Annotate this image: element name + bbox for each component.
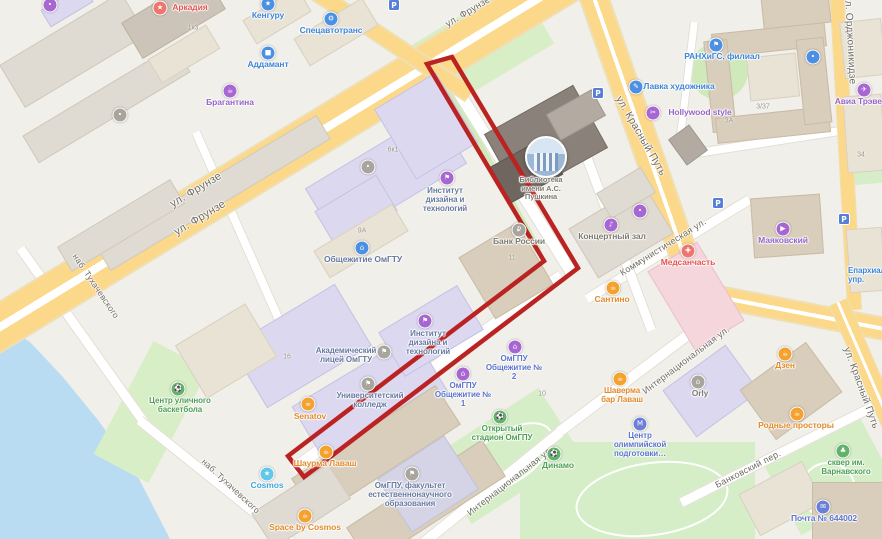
scissors-glyph: ✂ (650, 110, 656, 117)
star-glyph: ★ (265, 1, 271, 8)
poi-icon[interactable]: • (806, 50, 821, 65)
dot-glyph: • (638, 208, 642, 215)
park-icon[interactable]: ♣ (836, 444, 851, 459)
poi-label-eparkhia[interactable]: Епархиальное упр. (848, 266, 882, 284)
poi-label-library[interactable]: Библиотека имени А.С. Пушкина (515, 176, 567, 202)
poi-label-medsanchast[interactable]: Медсанчасть (661, 258, 715, 268)
flag-glyph: ⚑ (713, 42, 719, 49)
poi-label-addamant[interactable]: Аддамант (247, 60, 288, 70)
p-glyph: P (391, 1, 397, 10)
star-glyph: ★ (157, 5, 163, 12)
poi-label-omgpu-dorm1[interactable]: ОмГПУ Общежитие № 1 (432, 381, 494, 409)
education-icon[interactable]: ⚑ (377, 345, 392, 360)
poi-label-senatov[interactable]: Senatov (294, 412, 326, 422)
ball-glyph: ⚽ (174, 386, 183, 393)
poi-label-college[interactable]: Университетский колледж (336, 391, 404, 409)
parking-icon[interactable]: P (838, 213, 850, 225)
home-glyph: ⌂ (461, 371, 465, 378)
coffee-glyph: ☕ (323, 449, 329, 456)
poi-label-bank[interactable]: Банк России (493, 237, 545, 247)
poi-label-arkadia[interactable]: Аркадия (172, 3, 207, 13)
poi-label-avia-travel[interactable]: Авиа Трэвел (835, 97, 882, 107)
poi-label-mayakovsky[interactable]: Маяковский (758, 236, 808, 246)
poi-label-dinamo[interactable]: Динамо (542, 461, 574, 471)
poi-icon[interactable]: • (113, 108, 128, 123)
poi-icon[interactable]: • (633, 204, 648, 219)
education-icon[interactable]: ⚑ (405, 467, 420, 482)
poi-label-dzen[interactable]: Дзен (775, 361, 795, 371)
dot-glyph: • (48, 2, 52, 9)
building-number: 3А (725, 118, 734, 125)
star-glyph: ★ (264, 471, 270, 478)
music-glyph: ♪ (609, 222, 613, 229)
education-icon[interactable]: ⚑ (361, 377, 376, 392)
poi-label-lavka[interactable]: Лавка художника (643, 82, 714, 92)
poi-label-concert-hall[interactable]: Концертный зал (578, 232, 646, 242)
building-number: 9А (358, 228, 367, 235)
building-number: 16 (283, 354, 291, 361)
parking-icon[interactable]: P (592, 87, 604, 99)
building-number: 6к1 (388, 147, 399, 154)
poi-label-hollywood[interactable]: Hollywood style (668, 108, 731, 118)
parking-icon[interactable]: P (712, 197, 724, 209)
poi-label-shaurma[interactable]: Шаурма Лаваш (294, 459, 357, 469)
coffee-glyph: ☕ (782, 351, 788, 358)
dot-glyph: • (811, 54, 815, 61)
education-icon[interactable]: ⚑ (418, 314, 433, 329)
building-number: 1к3 (188, 25, 199, 32)
p-glyph: P (841, 215, 847, 224)
building-number: 34 (857, 152, 865, 159)
poi-label-shaverma[interactable]: Шаверма бар Лаваш (599, 386, 645, 404)
flag-glyph: ⚑ (365, 381, 371, 388)
beauty-salon-icon[interactable]: ✂ (646, 106, 661, 121)
dot-glyph: • (118, 112, 122, 119)
m-glyph: М (637, 421, 643, 428)
poi-label-omgpu-stadium[interactable]: Открытый стадион ОмГПУ (471, 424, 533, 442)
poi-label-kenguru[interactable]: Кенгуру (252, 11, 284, 21)
education-icon[interactable]: ⚑ (440, 171, 455, 186)
art-shop-icon[interactable]: ✎ (629, 80, 644, 95)
home-glyph: ⌂ (360, 245, 364, 252)
poi-label-basketball[interactable]: Центр уличного баскетбола (147, 396, 213, 414)
poi-label-dorm-omgtu[interactable]: Общежитие ОмГТУ (324, 255, 402, 265)
cafe-icon[interactable]: ☕ (301, 397, 316, 412)
block-glyph: ■ (265, 50, 272, 57)
poi-label-ranhigs[interactable]: РАНХиГС, филиал (684, 52, 760, 62)
poi-label-design-institute[interactable]: Институт дизайна и технологий (420, 186, 470, 214)
home-glyph: ⌂ (696, 379, 700, 386)
building-number: 11 (508, 255, 515, 262)
poi-label-bragantina[interactable]: Брагантина (206, 98, 254, 108)
flag-glyph: ⚑ (381, 349, 387, 356)
flag-glyph: ⚑ (409, 471, 415, 478)
play-glyph: ▶ (780, 226, 785, 233)
coffee-glyph: ☕ (610, 285, 616, 292)
coffee-glyph: ☕ (305, 401, 311, 408)
home-glyph: ⌂ (513, 344, 517, 351)
poi-label-omgpu-faculty[interactable]: ОмГПУ, факультет естественнонаучного обр… (366, 481, 454, 509)
cross-glyph: ✚ (685, 248, 691, 255)
poi-label-space-cosmos[interactable]: Space by Cosmos (269, 523, 341, 533)
shop-icon[interactable]: ★ (153, 1, 168, 16)
poi-label-orly[interactable]: Orly (692, 389, 709, 399)
building-number: 3/37 (756, 104, 770, 111)
ball-glyph: ⚽ (550, 451, 559, 458)
ruble-glyph: ₽ (517, 227, 521, 234)
poi-icon[interactable]: • (361, 160, 376, 175)
poi-label-pochta[interactable]: Почта № 644002 (791, 514, 857, 524)
coffee-glyph: ☕ (617, 376, 623, 383)
cafe-icon[interactable]: ☕ (613, 372, 628, 387)
dormitory-icon[interactable]: ⌂ (508, 340, 523, 355)
gear-glyph: ⚙ (328, 16, 334, 23)
coffee-glyph: ☕ (794, 411, 800, 418)
club-glyph: ♣ (840, 448, 846, 455)
sports-icon[interactable]: ⚽ (493, 410, 508, 425)
poi-label-skver[interactable]: сквер им. Варнавского (820, 458, 872, 476)
flag-glyph: ⚑ (444, 175, 450, 182)
poi-label-design-institute-2[interactable]: Институт дизайна и технологий (403, 329, 453, 357)
poi-label-cosmos[interactable]: Cosmos (251, 481, 284, 491)
coffee-glyph: ☕ (302, 513, 308, 520)
parking-icon[interactable]: P (388, 0, 400, 11)
poi-label-olympic-center[interactable]: Центр олимпийской подготовки… (612, 431, 668, 459)
flag-glyph: ⚑ (422, 318, 428, 325)
poi-label-omgpu-dorm2[interactable]: ОмГПУ Общежитие № 2 (483, 354, 545, 382)
sports-center-icon[interactable]: М (633, 417, 648, 432)
sports-icon[interactable]: ⚽ (171, 382, 186, 397)
poi-label-rodnye[interactable]: Родные просторы (758, 421, 834, 431)
poi-label-spetsavtotrans[interactable]: Спецавтотранс (300, 26, 363, 36)
pencil-glyph: ✎ (633, 84, 639, 91)
poi-label-santino[interactable]: Сантино (594, 295, 629, 305)
building-number: 10 (538, 391, 546, 398)
poi-label-lyceum[interactable]: Академический лицей ОмГТУ (314, 346, 378, 364)
p-glyph: P (595, 89, 601, 98)
ball-glyph: ⚽ (496, 414, 505, 421)
map-canvas[interactable]: ул. Фрунзе ул. Фрунзе ул. Фрунзе ул. Кра… (0, 0, 882, 539)
coffee-glyph: ☕ (227, 88, 233, 95)
envelope-glyph: ✉ (820, 504, 826, 511)
library-photo-icon[interactable] (525, 136, 567, 178)
p-glyph: P (715, 199, 721, 208)
dot-glyph: • (366, 164, 370, 171)
plane-glyph: ✈ (861, 87, 867, 94)
dormitory-icon[interactable]: ⌂ (456, 367, 471, 382)
